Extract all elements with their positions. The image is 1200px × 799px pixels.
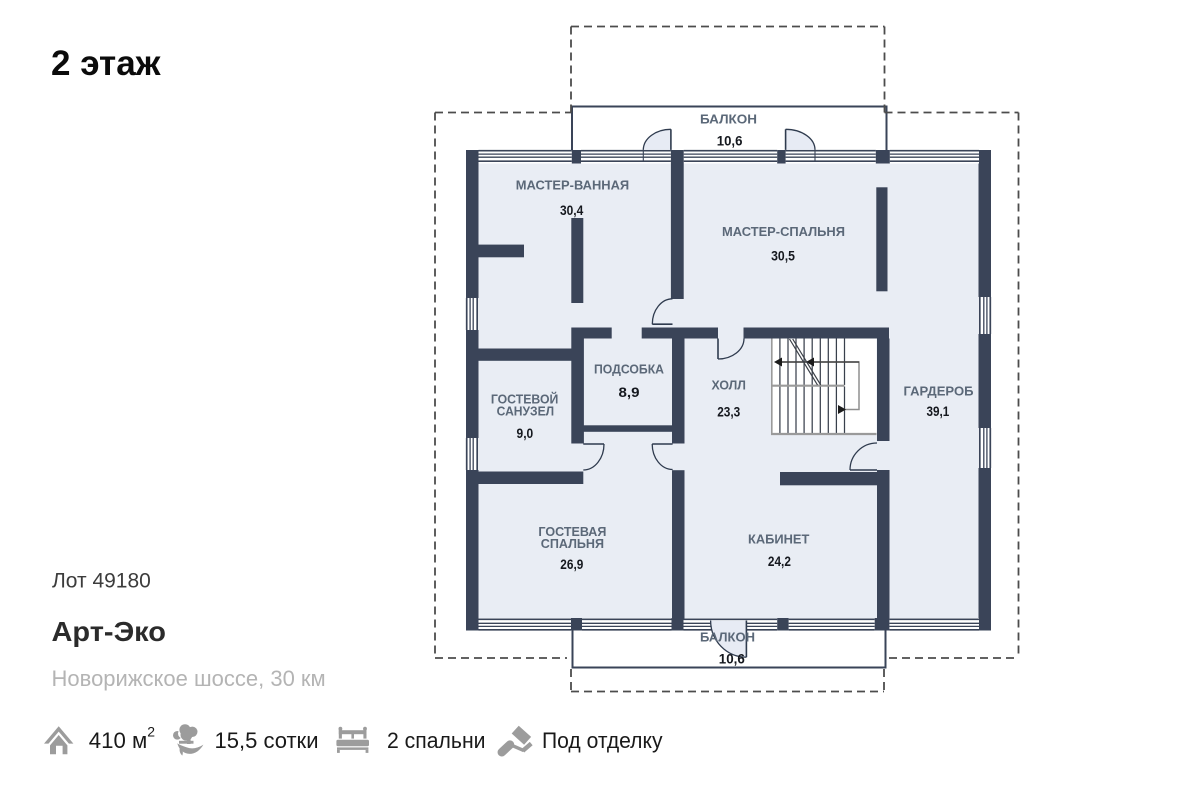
svg-text:Лот 49180: Лот 49180 [52,570,151,593]
svg-text:8,9: 8,9 [619,385,640,400]
svg-text:30,5: 30,5 [771,249,795,264]
svg-text:2: 2 [147,724,155,740]
svg-text:Новорижское шоссе, 30 км: Новорижское шоссе, 30 км [52,666,326,691]
svg-text:МАСТЕР-ВАННАЯ: МАСТЕР-ВАННАЯ [516,178,629,193]
svg-text:2 этаж: 2 этаж [51,44,162,83]
svg-text:410 м: 410 м [89,728,148,753]
svg-text:БАЛКОН: БАЛКОН [700,630,755,645]
svg-text:10,6: 10,6 [717,133,743,148]
svg-text:МАСТЕР-СПАЛЬНЯ: МАСТЕР-СПАЛЬНЯ [722,224,845,239]
svg-text:БАЛКОН: БАЛКОН [700,112,757,127]
svg-text:39,1: 39,1 [927,404,950,419]
svg-text:23,3: 23,3 [717,405,740,420]
svg-text:СПАЛЬНЯ: СПАЛЬНЯ [541,536,604,551]
svg-text:9,0: 9,0 [517,426,534,441]
svg-text:10,6: 10,6 [719,652,745,667]
svg-text:15,5 сотки: 15,5 сотки [215,728,319,753]
svg-text:КАБИНЕТ: КАБИНЕТ [748,532,809,547]
svg-text:ГАРДЕРОБ: ГАРДЕРОБ [904,384,974,399]
svg-text:Под отделку: Под отделку [542,728,663,753]
svg-text:30,4: 30,4 [560,203,584,218]
svg-text:Арт-Эко: Арт-Эко [52,616,167,647]
svg-text:САНУЗЕЛ: САНУЗЕЛ [497,404,555,419]
svg-text:ХОЛЛ: ХОЛЛ [711,378,746,393]
svg-text:2 спальни: 2 спальни [387,728,486,753]
svg-text:ПОДСОБКА: ПОДСОБКА [594,362,665,377]
svg-text:26,9: 26,9 [560,557,583,572]
svg-text:24,2: 24,2 [768,554,791,569]
